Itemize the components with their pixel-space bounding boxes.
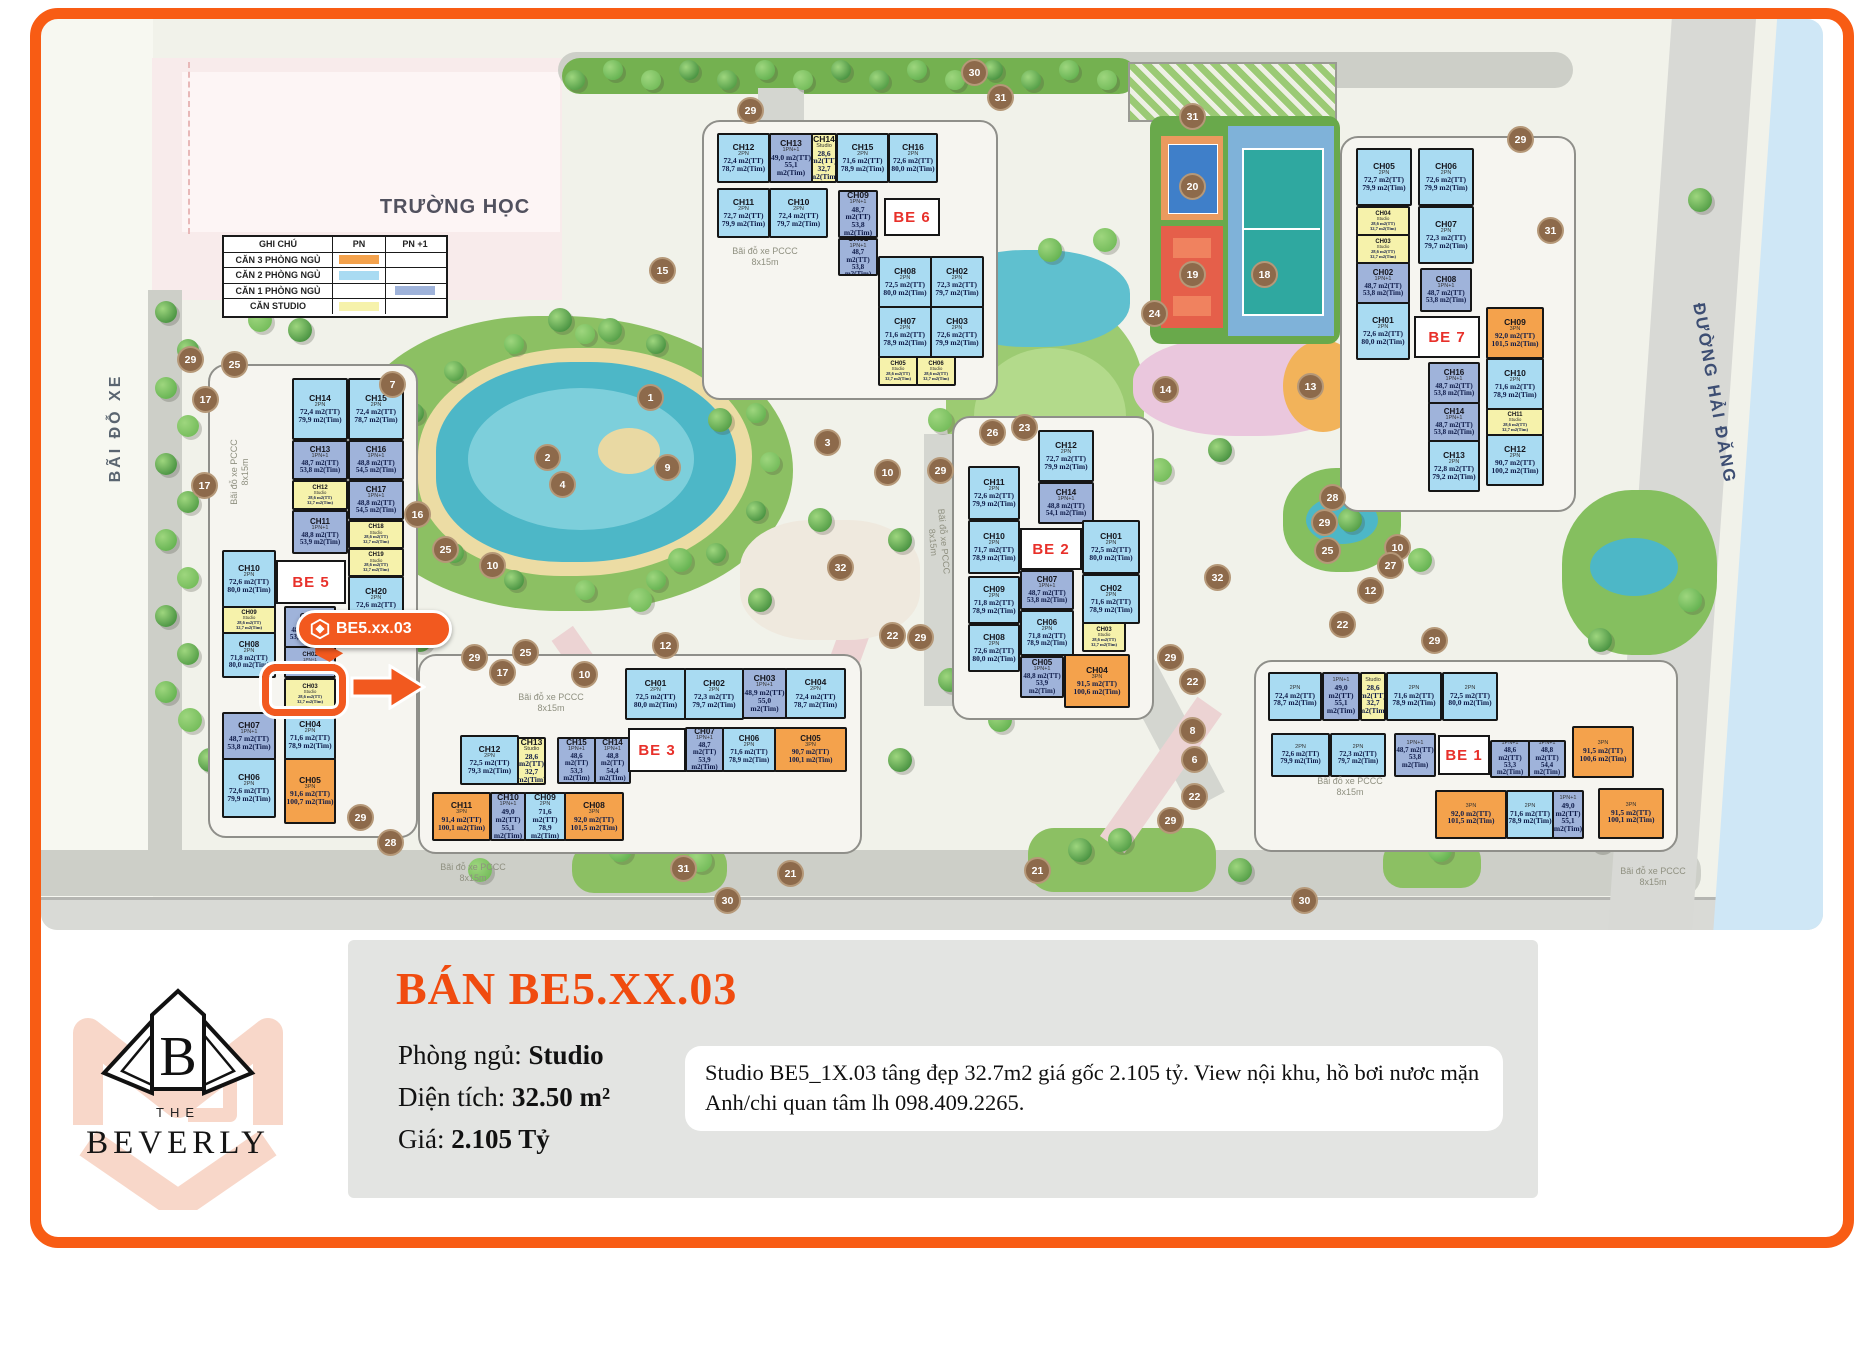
unit-BE6-CH13: CH131PN+149,0 m2(TT)55,1 m2(Tim) — [769, 133, 813, 183]
unit-BE3-CH09: CH092PN71,6 m2(TT)78,9 m2(Tim) — [524, 792, 566, 841]
tree — [628, 588, 652, 612]
tree — [155, 377, 177, 399]
tree — [888, 748, 912, 772]
unit-BE3-CH04: CH042PN72,4 m2(TT)78,7 m2(Tim) — [785, 668, 846, 719]
tennis-net — [1242, 228, 1320, 230]
map-marker-21: 21 — [1024, 857, 1051, 884]
map-marker-30: 30 — [714, 887, 741, 914]
tree — [646, 334, 666, 354]
unit-BE2-CH05: CH051PN+148,8 m2(TT)53,9 m2(Tim) — [1020, 656, 1064, 698]
pccc-label: Bãi đỗ xe PCCC 8x15m — [1610, 866, 1696, 890]
legend-swatch — [339, 302, 379, 311]
tree — [575, 324, 595, 344]
legend-swatch — [339, 255, 379, 264]
unit-BE5-CH14: CH142PN72,4 m2(TT)79,9 m2(Tim) — [292, 378, 348, 440]
bedrooms-value: Studio — [529, 1040, 604, 1070]
the-beverly-logo: B THE BEVERLY — [58, 985, 298, 1215]
map-marker-30: 30 — [1291, 887, 1318, 914]
map-marker-24: 24 — [1141, 300, 1168, 327]
map-marker-25: 25 — [432, 536, 459, 563]
map-marker-25: 25 — [1314, 537, 1341, 564]
unit-BE7-CH11: CH11Studio28,6 m2(TT)32,7 m2(Tim) — [1486, 408, 1544, 436]
pccc-label: Bãi đỗ xe PCCC 8x15m — [430, 862, 516, 886]
tree — [504, 334, 524, 354]
unit-BE6-CH10: CH102PN72,4 m2(TT)79,7 m2(Tim) — [769, 188, 828, 238]
map-marker-25: 25 — [221, 351, 248, 378]
tree — [746, 403, 766, 423]
tree — [155, 453, 177, 475]
tree — [1208, 438, 1232, 462]
unit-BE5-CH12: CH12Studio28,6 m2(TT)32,7 m2(Tim) — [292, 480, 348, 510]
map-marker-29: 29 — [347, 804, 374, 831]
tree — [646, 570, 666, 590]
tree — [177, 415, 199, 437]
tree — [668, 548, 692, 572]
map-marker-22: 22 — [1329, 611, 1356, 638]
map-marker-17: 17 — [489, 659, 516, 686]
callout-pill: BE5.xx.03 — [296, 610, 452, 648]
map-marker-19: 19 — [1179, 261, 1206, 288]
unit-BE3-CH06: CH062PN71,6 m2(TT)78,9 m2(Tim) — [722, 727, 776, 772]
map-marker-23: 23 — [1011, 414, 1038, 441]
pccc-label: Bãi đỗ xe PCCC 8x15m — [508, 692, 594, 716]
tree — [177, 567, 199, 589]
map-marker-29: 29 — [1507, 126, 1534, 153]
unit-BE7-CH10: CH102PN71,6 m2(TT)78,9 m2(Tim) — [1486, 358, 1544, 410]
tree — [1408, 548, 1432, 572]
parking-label: BÃI ĐỖ XE — [107, 348, 133, 508]
callout-label: BE5.xx.03 — [336, 620, 412, 638]
school-dashed-line — [188, 62, 192, 234]
unit-BE3-CH01: CH012PN72,5 m2(TT)80,0 m2(Tim) — [625, 668, 686, 720]
map-marker-2: 2 — [534, 444, 561, 471]
unit-BE6-CH11: CH112PN72,7 m2(TT)79,9 m2(Tim) — [717, 188, 770, 238]
tree — [178, 708, 202, 732]
unit-BE7-CH03: CH03Studio28,6 m2(TT)32,7 m2(Tim) — [1356, 234, 1410, 264]
map-marker-10: 10 — [571, 661, 598, 688]
tree — [1021, 70, 1041, 90]
tree — [1093, 228, 1117, 252]
tree — [1059, 60, 1079, 80]
legend-row-label: CĂN 1 PHÒNG NGỦ — [224, 284, 332, 299]
map-marker-30: 30 — [961, 59, 988, 86]
tree — [869, 70, 889, 90]
unit-BE5-CH10: CH102PN72,6 m2(TT)80,0 m2(Tim) — [222, 550, 276, 608]
unit-BE1-2PN: 2PN71,6 m2(TT)78,9 m2(Tim) — [1506, 790, 1554, 839]
unit-BE1-1PN+1: 1PN+148,8 m2(TT)54,4 m2(Tim) — [1528, 740, 1566, 778]
unit-BE2-CH08: CH082PN72,6 m2(TT)80,0 m2(Tim) — [968, 624, 1020, 672]
tree — [641, 70, 661, 90]
map-marker-20: 20 — [1179, 173, 1206, 200]
unit-BE1-2PN: 2PN72,4 m2(TT)78,7 m2(Tim) — [1268, 672, 1322, 721]
unit-BE1-Studio: Studio28,6 m2(TT)32,7 m2(Tim) — [1360, 672, 1386, 721]
map-marker-22: 22 — [1181, 783, 1208, 810]
flyer-root: CH142PN72,4 m2(TT)79,9 m2(Tim)CH152PN72,… — [0, 0, 1864, 1366]
unit-BE6-CH01: CH011PN+148,7 m2(TT)53,8 m2(Tim) — [838, 238, 878, 276]
map-marker-26: 26 — [979, 419, 1006, 446]
map-marker-29: 29 — [737, 97, 764, 124]
unit-BE3-CH15: CH151PN+148,6 m2(TT)53,3 m2(Tim) — [557, 737, 596, 784]
tree — [679, 60, 699, 80]
unit-BE1-1PN+1: 1PN+149,0 m2(TT)55,1 m2(Tim) — [1322, 672, 1360, 721]
pccc-label: Bãi đỗ xe PCCC 8x15m — [1307, 776, 1393, 800]
unit-BE2-CH01: CH012PN72,5 m2(TT)80,0 m2(Tim) — [1082, 520, 1140, 574]
unit-BE7-CH01: CH012PN72,6 m2(TT)80,0 m2(Tim) — [1356, 302, 1410, 360]
unit-BE2-CH04: CH043PN91,5 m2(TT)100,6 m2(Tim) — [1064, 654, 1130, 708]
unit-BE6-CH07: CH072PN71,6 m2(TT)78,9 m2(Tim) — [878, 306, 932, 358]
unit-BE1-1PN+1: 1PN+148,7 m2(TT)53,8 m2(Tim) — [1394, 733, 1436, 777]
map-marker-22: 22 — [1179, 668, 1206, 695]
legend-swatch — [395, 286, 435, 295]
map-marker-25: 25 — [512, 639, 539, 666]
building-label-BE3: BE 3 — [628, 728, 686, 772]
map-marker-17: 17 — [192, 386, 219, 413]
tree — [288, 318, 312, 342]
unit-BE6-CH08: CH082PN72,5 m2(TT)80,0 m2(Tim) — [878, 256, 932, 308]
arrow-icon — [350, 664, 426, 710]
sale-title: BÁN BE5.XX.03 — [396, 962, 737, 1015]
legend-table: GHI CHÚPNPN +1CĂN 3 PHÒNG NGỦCĂN 2 PHÒNG… — [222, 235, 448, 318]
unit-BE3-CH03: CH031PN+148,9 m2(TT)55,0 m2(Tim) — [742, 668, 787, 719]
map-marker-31: 31 — [670, 855, 697, 882]
unit-BE7-CH16: CH161PN+148,7 m2(TT)53,8 m2(Tim) — [1428, 362, 1480, 404]
unit-BE1-2PN: 2PN71,6 m2(TT)78,9 m2(Tim) — [1386, 672, 1442, 721]
unit-BE2-CH07: CH071PN+148,7 m2(TT)53,8 m2(Tim) — [1020, 570, 1074, 610]
map-marker-22: 22 — [879, 622, 906, 649]
unit-BE5-CH05: CH053PN91,6 m2(TT)100,7 m2(Tim) — [284, 758, 336, 824]
legend-header-note: GHI CHÚ — [224, 237, 332, 252]
map-marker-29: 29 — [461, 644, 488, 671]
map-marker-10: 10 — [479, 552, 506, 579]
unit-BE1-3PN: 3PN91,5 m2(TT)100,6 m2(Tim) — [1572, 726, 1634, 778]
tree — [1038, 238, 1062, 262]
basketball-key-top — [1173, 238, 1211, 258]
sale-info-panel: BÁN BE5.XX.03 Phòng ngủ: Studio Diện tíc… — [348, 940, 1538, 1198]
tree — [575, 580, 595, 600]
map-marker-31: 31 — [1537, 217, 1564, 244]
unit-BE1-2PN: 2PN72,6 m2(TT)79,9 m2(Tim) — [1271, 733, 1330, 777]
map-marker-14: 14 — [1152, 376, 1179, 403]
building-label-BE5: BE 5 — [276, 560, 346, 604]
tree — [808, 508, 832, 532]
map-marker-12: 12 — [652, 632, 679, 659]
tree — [831, 60, 851, 80]
unit-BE6-CH15: CH152PN71,6 m2(TT)78,9 m2(Tim) — [836, 133, 889, 183]
unit-BE1-3PN: 3PN92,0 m2(TT)101,5 m2(Tim) — [1435, 790, 1507, 839]
unit-BE7-CH08: CH081PN+148,7 m2(TT)53,8 m2(Tim) — [1420, 268, 1472, 312]
legend-header-pn1: PN +1 — [385, 237, 444, 252]
tree — [793, 70, 813, 90]
school-label: TRƯỜNG HỌC — [370, 196, 540, 222]
unit-BE7-CH13: CH132PN72,8 m2(TT)79,2 m2(Tim) — [1428, 440, 1480, 492]
unit-BE5-CH06: CH062PN72,6 m2(TT)79,9 m2(Tim) — [222, 758, 276, 818]
map-marker-32: 32 — [1204, 564, 1231, 591]
building-label-BE1: BE 1 — [1438, 735, 1490, 775]
unit-BE3-CH12: CH122PN72,5 m2(TT)79,3 m2(Tim) — [460, 735, 519, 785]
roof-garden — [1128, 62, 1337, 122]
unit-BE7-CH05: CH052PN72,7 m2(TT)79,9 m2(Tim) — [1356, 148, 1412, 206]
callout-arrow — [350, 664, 426, 710]
basketball-key-bottom — [1173, 296, 1211, 316]
tree — [1068, 838, 1092, 862]
unit-BE1-2PN: 2PN72,3 m2(TT)79,7 m2(Tim) — [1330, 733, 1386, 777]
unit-BE3-CH08: CH083PN92,0 m2(TT)101,5 m2(Tim) — [564, 792, 624, 841]
unit-BE1-3PN: 3PN91,5 m2(TT)100,1 m2(Tim) — [1598, 788, 1664, 839]
tennis-court — [1242, 148, 1324, 316]
map-marker-27: 27 — [1377, 552, 1404, 579]
map-marker-8: 8 — [1179, 717, 1206, 744]
bedrooms-row: Phòng ngủ: Studio — [398, 1040, 604, 1071]
map-marker-21: 21 — [777, 860, 804, 887]
tree — [928, 408, 952, 432]
map-marker-29: 29 — [1311, 509, 1338, 536]
map-marker-28: 28 — [377, 829, 404, 856]
unit-BE3-CH11: CH113PN91,4 m2(TT)100,1 m2(Tim) — [432, 792, 491, 841]
unit-BE1-2PN: 2PN72,5 m2(TT)80,0 m2(Tim) — [1442, 672, 1498, 721]
map-marker-15: 15 — [649, 257, 676, 284]
unit-BE3-CH13: CH13Studio28,6 m2(TT)32,7 m2(Tim) — [517, 737, 546, 785]
unit-BE3-CH10: CH101PN+149,0 m2(TT)55,1 m2(Tim) — [490, 792, 526, 841]
map-marker-29: 29 — [1421, 627, 1448, 654]
tree — [748, 588, 772, 612]
price-value: 2.105 Tỷ — [451, 1124, 550, 1154]
unit-BE6-CH03: CH032PN72,6 m2(TT)79,9 m2(Tim) — [930, 306, 984, 358]
building-label-BE2: BE 2 — [1020, 528, 1082, 570]
listing-description: Studio BE5_1X.03 tâng đẹp 32.7m2 giá gốc… — [685, 1046, 1503, 1131]
svg-text:B: B — [159, 1026, 196, 1088]
map-marker-13: 13 — [1297, 373, 1324, 400]
map-marker-29: 29 — [927, 457, 954, 484]
pond-bottom-right — [1590, 538, 1678, 596]
map-marker-3: 3 — [814, 429, 841, 456]
street-band — [41, 900, 1823, 930]
site-plan-map: CH142PN72,4 m2(TT)79,9 m2(Tim)CH152PN72,… — [41, 19, 1823, 930]
bedrooms-label: Phòng ngủ: — [398, 1040, 522, 1070]
building-label-BE7: BE 7 — [1414, 316, 1480, 358]
unit-BE6-CH16: CH162PN72,6 m2(TT)80,0 m2(Tim) — [888, 133, 938, 183]
price-row: Giá: 2.105 Tỷ — [398, 1124, 550, 1155]
unit-BE7-CH02: CH021PN+148,7 m2(TT)53,8 m2(Tim) — [1356, 262, 1410, 304]
unit-BE7-CH06: CH062PN72,6 m2(TT)79,9 m2(Tim) — [1418, 148, 1474, 206]
area-row: Diện tích: 32.50 m² — [398, 1082, 610, 1113]
unit-BE2-CH06: CH062PN71,8 m2(TT)78,9 m2(Tim) — [1020, 610, 1074, 656]
map-marker-29: 29 — [907, 624, 934, 651]
tree — [155, 681, 177, 703]
unit-BE3-CH14: CH141PN+148,8 m2(TT)54,4 m2(Tim) — [594, 737, 631, 784]
tree — [155, 301, 177, 323]
unit-BE5-CH09: CH09Studio28,6 m2(TT)32,7 m2(Tim) — [222, 606, 276, 634]
unit-BE2-CH10: CH102PN71,7 m2(TT)78,9 m2(Tim) — [968, 520, 1020, 574]
lagoon-island — [598, 428, 660, 474]
logo-graphic: B THE BEVERLY — [58, 985, 298, 1210]
unit-BE1-1PN+1: 1PN+149,0 m2(TT)55,1 m2(Tim) — [1552, 790, 1584, 839]
callout-logo-icon — [309, 618, 331, 640]
unit-BE6-CH09: CH091PN+148,7 m2(TT)53,8 m2(Tim) — [838, 190, 878, 238]
unit-BE2-CH09: CH092PN71,8 m2(TT)78,9 m2(Tim) — [968, 576, 1020, 624]
tree — [717, 70, 737, 90]
unit-BE5-CH17: CH171PN+148,8 m2(TT)54,5 m2(Tim) — [348, 480, 404, 520]
tree — [598, 318, 622, 342]
map-marker-4: 4 — [549, 471, 576, 498]
tree — [548, 308, 572, 332]
unit-BE7-CH09: CH093PN92,0 m2(TT)101,5 m2(Tim) — [1486, 307, 1544, 359]
unit-BE6-CH06: CH06Studio28,6 m2(TT)32,7 m2(Tim) — [916, 356, 956, 386]
map-marker-28: 28 — [1319, 484, 1346, 511]
unit-BE6-CH05: CH05Studio28,6 m2(TT)32,7 m2(Tim) — [878, 356, 918, 386]
unit-BE7-CH14: CH141PN+148,7 m2(TT)53,8 m2(Tim) — [1428, 402, 1480, 442]
tree — [708, 408, 732, 432]
tree — [603, 60, 623, 80]
map-marker-32: 32 — [827, 554, 854, 581]
unit-BE7-CH04: CH04Studio28,6 m2(TT)32,7 m2(Tim) — [1356, 206, 1410, 236]
legend-header-pn: PN — [332, 237, 385, 252]
map-marker-31: 31 — [1179, 103, 1206, 130]
unit-BE3-CH02: CH022PN72,3 m2(TT)79,7 m2(Tim) — [684, 668, 744, 720]
map-marker-29: 29 — [1157, 807, 1184, 834]
legend-swatch — [339, 271, 379, 280]
unit-BE3-CH05: CH053PN90,7 m2(TT)100,1 m2(Tim) — [774, 727, 847, 772]
unit-BE7-CH07: CH072PN72,3 m2(TT)79,7 m2(Tim) — [1418, 206, 1474, 264]
unit-BE5-CH19: CH19Studio28,6 m2(TT)32,7 m2(Tim) — [348, 548, 404, 577]
unit-BE2-CH03: CH03Studio28,6 m2(TT)32,7 m2(Tim) — [1082, 622, 1126, 652]
map-marker-1: 1 — [637, 384, 664, 411]
unit-BE5-CH04: CH042PN71,6 m2(TT)78,9 m2(Tim) — [284, 710, 336, 760]
building-label-BE6: BE 6 — [884, 198, 940, 236]
unit-BE3-CH07: CH071PN+148,7 m2(TT)53,9 m2(Tim) — [685, 727, 724, 772]
map-marker-6: 6 — [1181, 746, 1208, 773]
tree — [907, 60, 927, 80]
highlight-ring — [262, 664, 346, 716]
map-marker-7: 7 — [379, 371, 406, 398]
logo-b-emblem: B — [104, 991, 252, 1093]
tree — [155, 529, 177, 551]
unit-BE2-CH12: CH122PN72,7 m2(TT)79,9 m2(Tim) — [1038, 430, 1094, 482]
unit-BE2-CH11: CH112PN72,6 m2(TT)79,9 m2(Tim) — [968, 466, 1020, 520]
unit-BE5-CH16: CH161PN+148,8 m2(TT)54,5 m2(Tim) — [348, 440, 404, 480]
pccc-label: Bãi đỗ xe PCCC 8x15m — [722, 246, 808, 270]
unit-BE6-CH14: CH14Studio28,6 m2(TT)32,7 m2(Tim) — [811, 133, 837, 183]
legend-row-label: CĂN 2 PHÒNG NGỦ — [224, 268, 332, 283]
unit-BE1-1PN+1: 1PN+148,6 m2(TT)53,3 m2(Tim) — [1490, 740, 1530, 778]
tree — [1678, 588, 1702, 612]
tree — [1588, 628, 1612, 652]
tree — [155, 605, 177, 627]
unit-BE5-CH18: CH18Studio28,6 m2(TT)32,7 m2(Tim) — [348, 520, 404, 549]
map-marker-31: 31 — [987, 84, 1014, 111]
unit-BE5-CH11: CH111PN+148,8 m2(TT)53,9 m2(Tim) — [292, 510, 348, 554]
pccc-label: Bãi đỗ xe PCCC 8x15m — [229, 429, 253, 515]
unit-BE2-CH02: CH022PN71,6 m2(TT)78,9 m2(Tim) — [1082, 574, 1140, 624]
unit-BE7-CH12: CH122PN90,7 m2(TT)100,2 m2(Tim) — [1486, 434, 1544, 486]
map-marker-18: 18 — [1251, 261, 1278, 288]
map-marker-10: 10 — [874, 459, 901, 486]
map-marker-9: 9 — [654, 454, 681, 481]
tree — [760, 452, 780, 472]
map-marker-29: 29 — [177, 346, 204, 373]
map-marker-12: 12 — [1357, 577, 1384, 604]
tree — [1688, 188, 1712, 212]
logo-the-text: THE — [156, 1105, 200, 1120]
unit-BE6-CH02: CH022PN72,3 m2(TT)79,7 m2(Tim) — [930, 256, 984, 308]
logo-beverly-text: BEVERLY — [86, 1125, 270, 1161]
tree — [706, 543, 726, 563]
map-marker-17: 17 — [191, 472, 218, 499]
price-label: Giá: — [398, 1124, 445, 1154]
unit-BE6-CH12: CH122PN72,4 m2(TT)78,7 m2(Tim) — [717, 133, 770, 183]
left-strip — [41, 19, 153, 911]
legend-row-label: CĂN 3 PHÒNG NGỦ — [224, 253, 332, 268]
map-marker-29: 29 — [1157, 644, 1184, 671]
tree — [1228, 858, 1252, 882]
tree — [177, 643, 199, 665]
tree — [1108, 828, 1132, 852]
tree — [1097, 70, 1117, 90]
area-label: Diện tích: — [398, 1082, 505, 1112]
legend-row-label: CĂN STUDIO — [224, 299, 332, 314]
unit-BE5-CH07: CH071PN+148,7 m2(TT)53,8 m2(Tim) — [222, 712, 276, 760]
area-value: 32.50 m² — [512, 1082, 610, 1112]
tree — [755, 60, 775, 80]
tree — [888, 528, 912, 552]
unit-BE2-CH14: CH141PN+148,8 m2(TT)54,1 m2(Tim) — [1038, 482, 1094, 524]
unit-BE5-CH13: CH131PN+148,7 m2(TT)53,8 m2(Tim) — [292, 440, 348, 480]
map-marker-16: 16 — [404, 501, 431, 528]
tree — [565, 70, 585, 90]
tree — [746, 501, 766, 521]
